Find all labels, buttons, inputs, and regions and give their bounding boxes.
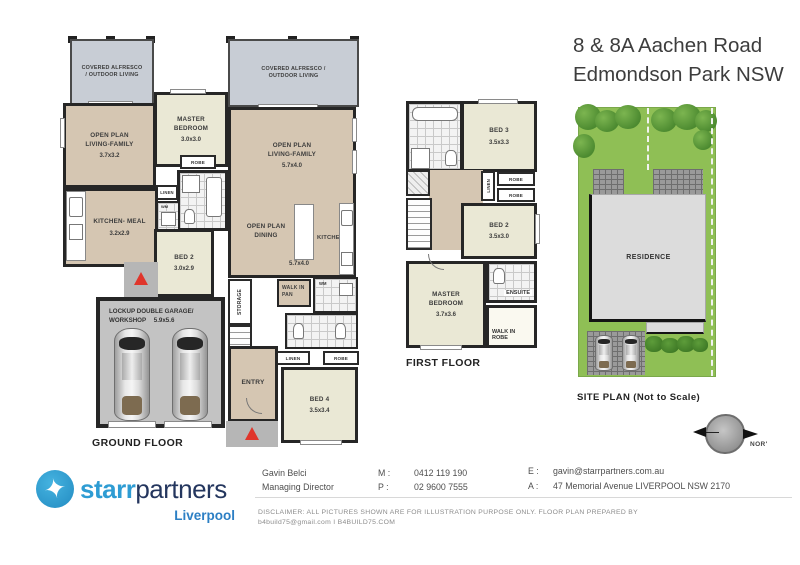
- window: [352, 150, 357, 174]
- address-value: 47 Memorial Avenue LIVERPOOL NSW 2170: [553, 481, 730, 491]
- site-plan: RESIDENCE: [578, 107, 716, 377]
- agent-name: Gavin Belci: [262, 468, 307, 478]
- car-icon: [114, 328, 150, 421]
- stove-icon: [69, 224, 83, 240]
- walk-in-pantry: WALK IN PAN: [277, 279, 311, 307]
- phone-label: P :: [378, 482, 389, 492]
- boundary-line: [711, 108, 713, 376]
- patio-pavers: [653, 169, 703, 194]
- linen-left: LINEN: [156, 185, 178, 200]
- window: [478, 99, 518, 104]
- car-roof: [626, 345, 636, 355]
- room-garage: LOCKUP DOUBLE GARAGE/ WORKSHOP 5.9x5.6: [96, 297, 225, 428]
- garage-door: [108, 421, 156, 428]
- room-bed2-first: BED 2 3.5x3.0: [461, 203, 537, 259]
- window: [535, 214, 540, 244]
- toilet-icon: [184, 209, 195, 224]
- room-bed4-mid: BED 4 3.5x3.4: [281, 367, 358, 443]
- stove-icon: [341, 252, 353, 266]
- address-label: A :: [528, 481, 538, 491]
- laundry-mid: WM: [313, 277, 358, 313]
- bathroom-first: [406, 101, 463, 172]
- robe-left: ROBE: [180, 155, 216, 169]
- entry-arrow-icon: [134, 272, 148, 285]
- mobile-label: M :: [378, 468, 390, 478]
- residence: RESIDENCE: [589, 194, 706, 322]
- window: [60, 118, 65, 148]
- title-line2: Edmondson Park NSW: [573, 60, 788, 89]
- kitchen-counter: [339, 203, 354, 275]
- washing-machine-icon: [161, 212, 176, 226]
- linen-mid: LINEN: [276, 351, 310, 365]
- toilet-icon: [293, 323, 304, 339]
- stairs-first: [406, 198, 432, 250]
- car-windshield: [177, 337, 203, 350]
- toilet-icon: [493, 268, 505, 284]
- room-alfresco-left: COVERED ALFRESCO / OUTDOOR LIVING: [70, 39, 154, 105]
- walk-in-robe-first: WALK IN ROBE: [486, 305, 537, 348]
- tree-icon: [695, 110, 717, 132]
- north-arrow-icon: [743, 429, 758, 439]
- phone-number: 02 9600 7555: [414, 482, 468, 492]
- car-windshield: [598, 339, 610, 344]
- car-icon: [622, 335, 640, 371]
- mobile-number: 0412 119 190: [414, 468, 467, 478]
- storage-mid: STORAGE: [228, 279, 252, 325]
- stair-void: [406, 170, 430, 196]
- entry-porch-mid: [226, 421, 278, 447]
- robe-first-top: ROBE: [497, 172, 535, 186]
- sink-icon: [341, 210, 353, 226]
- room-bed2-left: BED 2 3.0x2.9: [154, 229, 214, 297]
- robe-first-bottom: ROBE: [497, 188, 535, 202]
- brand-location: Liverpool: [140, 508, 235, 523]
- kitchen-island: [294, 204, 314, 260]
- robe-mid: ROBE: [323, 351, 359, 365]
- toilet-icon: [335, 323, 346, 339]
- page-title: 8 & 8A Aachen Road Edmondson Park NSW: [573, 31, 788, 89]
- title-line1: 8 & 8A Aachen Road: [573, 31, 788, 60]
- tree-icon: [573, 134, 595, 158]
- agent-role: Managing Director: [262, 482, 334, 492]
- ground-floor-caption: GROUND FLOOR: [92, 437, 183, 449]
- laundry-left: WM: [156, 201, 180, 231]
- email-value: gavin@starrpartners.com.au: [553, 466, 664, 476]
- ensuite-first: ENSUITE: [486, 261, 537, 303]
- shrub-icon: [692, 338, 708, 352]
- washing-machine-icon: [339, 283, 353, 296]
- residence-extension: [646, 322, 704, 334]
- window: [170, 89, 206, 94]
- room-dining-kitchen-mid: OPEN PLAN DINING 5.7x4.0 KITCHEN: [228, 201, 356, 278]
- bathroom-left: [177, 170, 228, 231]
- shower-icon: [182, 175, 200, 193]
- garage-label: LOCKUP DOUBLE GARAGE/ WORKSHOP 5.9x5.6: [109, 307, 215, 326]
- car-rear: [122, 396, 142, 414]
- window: [420, 345, 462, 350]
- room-alfresco-mid: COVERED ALFRESCO / OUTDOOR LIVING: [228, 39, 359, 107]
- patio-pavers: [593, 169, 624, 195]
- bathtub-icon: [206, 177, 222, 217]
- car-roof: [122, 353, 142, 380]
- compass-label: NOR': [750, 441, 768, 448]
- car-windshield: [119, 337, 145, 350]
- floor-plan-page: 8 & 8A Aachen Road Edmondson Park NSW CO…: [0, 0, 800, 565]
- compass-west-arrow: [693, 427, 706, 437]
- boundary-divider: [647, 108, 649, 170]
- car-icon: [172, 328, 208, 421]
- room-master-first: MASTER BEDROOM 3.7x3.6: [406, 261, 486, 348]
- car-icon: [595, 335, 613, 371]
- linen-first: LINEN: [481, 171, 495, 201]
- brand-wordmark: starrpartners: [80, 474, 227, 505]
- car-windshield: [625, 339, 637, 344]
- room-living-mid: OPEN PLAN LIVING-FAMILY 5.7x4.0: [228, 107, 356, 201]
- compass-icon: NOR': [695, 408, 785, 464]
- star-glyph: ✦: [41, 473, 69, 504]
- car-rear: [180, 396, 200, 414]
- room-bed3-first: BED 3 3.5x3.3: [461, 101, 537, 172]
- entry-arrow-icon: [245, 427, 259, 440]
- first-floor-caption: FIRST FLOOR: [406, 357, 480, 369]
- shower-icon: [411, 148, 430, 169]
- window: [352, 118, 357, 142]
- disclaimer-line2: b4build75@gmail.com I B4BUILD75.COM: [258, 519, 778, 526]
- toilet-icon: [445, 150, 457, 166]
- car-roof: [180, 353, 200, 380]
- window: [300, 440, 342, 445]
- footer-divider: [255, 497, 792, 498]
- sink-icon: [69, 197, 83, 217]
- disclaimer-line1: DISCLAIMER: ALL PICTURES SHOWN ARE FOR I…: [258, 509, 778, 516]
- room-living-left: OPEN PLAN LIVING-FAMILY 3.7x3.2: [63, 103, 156, 188]
- car-rear: [626, 361, 636, 368]
- wm-label: WM: [319, 281, 326, 286]
- bathtub-icon: [412, 107, 458, 121]
- kitchen-counter: [66, 191, 86, 261]
- bathroom-mid: [285, 313, 358, 349]
- car-roof: [599, 345, 609, 355]
- email-label: E :: [528, 466, 539, 476]
- compass-rose: [705, 414, 745, 454]
- tree-icon: [693, 130, 713, 150]
- wm-label: WM: [161, 204, 168, 209]
- site-plan-caption: SITE PLAN (Not to Scale): [577, 392, 700, 403]
- tree-icon: [615, 105, 641, 129]
- garage-door: [164, 421, 212, 428]
- starr-partners-logo: ✦ starrpartners: [36, 468, 246, 510]
- entry-porch-left: [124, 262, 158, 300]
- starr-partners-logo-icon: ✦: [36, 470, 74, 508]
- car-rear: [599, 361, 609, 368]
